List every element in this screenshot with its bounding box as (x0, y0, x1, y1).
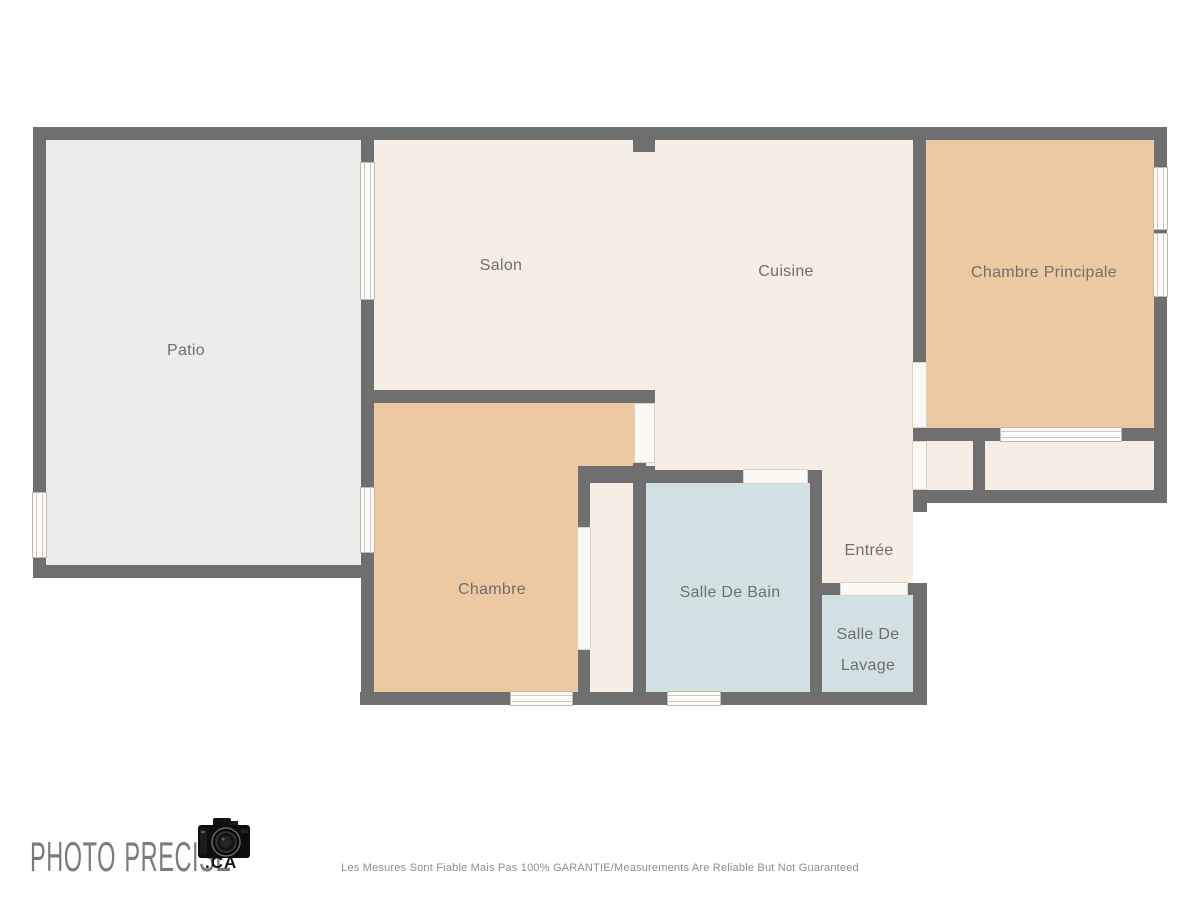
door-salle-de-lavage (840, 582, 908, 596)
room-label-salle-de-bain: Salle De Bain (680, 584, 781, 602)
wall-patio-bottom (33, 565, 374, 578)
door-entree-closet (912, 441, 927, 490)
wall-salon-cuisine-stub (633, 140, 655, 152)
room-label-chambre: Chambre (458, 581, 526, 599)
entree-floor (822, 483, 913, 595)
disclaimer-text: Les Mesures Sont Fiable Mais Pas 100% GA… (0, 862, 1200, 874)
wall-chambre-right-lower (578, 650, 590, 692)
window-right-upper (1153, 167, 1168, 230)
room-label-entree: Entrée (845, 542, 894, 560)
floor-plan: Patio Salon Cuisine Chambre Principale C… (0, 0, 1200, 900)
window-patio-chambre (360, 487, 375, 553)
room-label-cuisine: Cuisine (758, 263, 813, 281)
room-label-salle-de-lavage: Salle De Lavage (837, 619, 900, 681)
door-chambre-principale (912, 362, 927, 428)
closet-left-floor (926, 441, 973, 490)
room-label-salle-de-lavage-line1: Salle De (837, 619, 900, 650)
wall-salon-bottom (361, 390, 655, 403)
wall-spine-upper (913, 140, 926, 362)
window-patio-salon (360, 162, 375, 300)
room-label-chambre-principale: Chambre Principale (971, 264, 1117, 282)
closet-right-floor (985, 441, 1154, 490)
wall-top (33, 127, 1167, 140)
window-left-wall (32, 492, 47, 558)
door-cuisine-chambre (634, 403, 655, 463)
wall-sdb-right (810, 470, 822, 705)
wall-sdl-right (913, 583, 927, 705)
room-label-salle-de-lavage-line2: Lavage (837, 650, 900, 681)
window-sdb-bottom (667, 691, 721, 706)
logo-tld: .CA (205, 853, 237, 873)
wall-closet-bottom (913, 490, 1167, 503)
room-label-patio: Patio (167, 342, 205, 360)
window-chambre-bottom (510, 691, 573, 706)
door-chambre-closet (577, 527, 591, 650)
wall-chambre-right-upper (578, 480, 590, 527)
room-label-salon: Salon (480, 257, 522, 275)
closet-hall-floor (590, 480, 633, 692)
window-right-lower (1153, 233, 1168, 297)
salon-cuisine-floor (374, 140, 913, 403)
wall-closet-divider (973, 441, 985, 490)
wall-sdb-left (633, 463, 646, 705)
window-cp-closet (1000, 427, 1122, 442)
door-salle-de-bain (743, 469, 808, 484)
wall-bottom (360, 692, 927, 705)
chambre-principale-floor (926, 140, 1154, 428)
